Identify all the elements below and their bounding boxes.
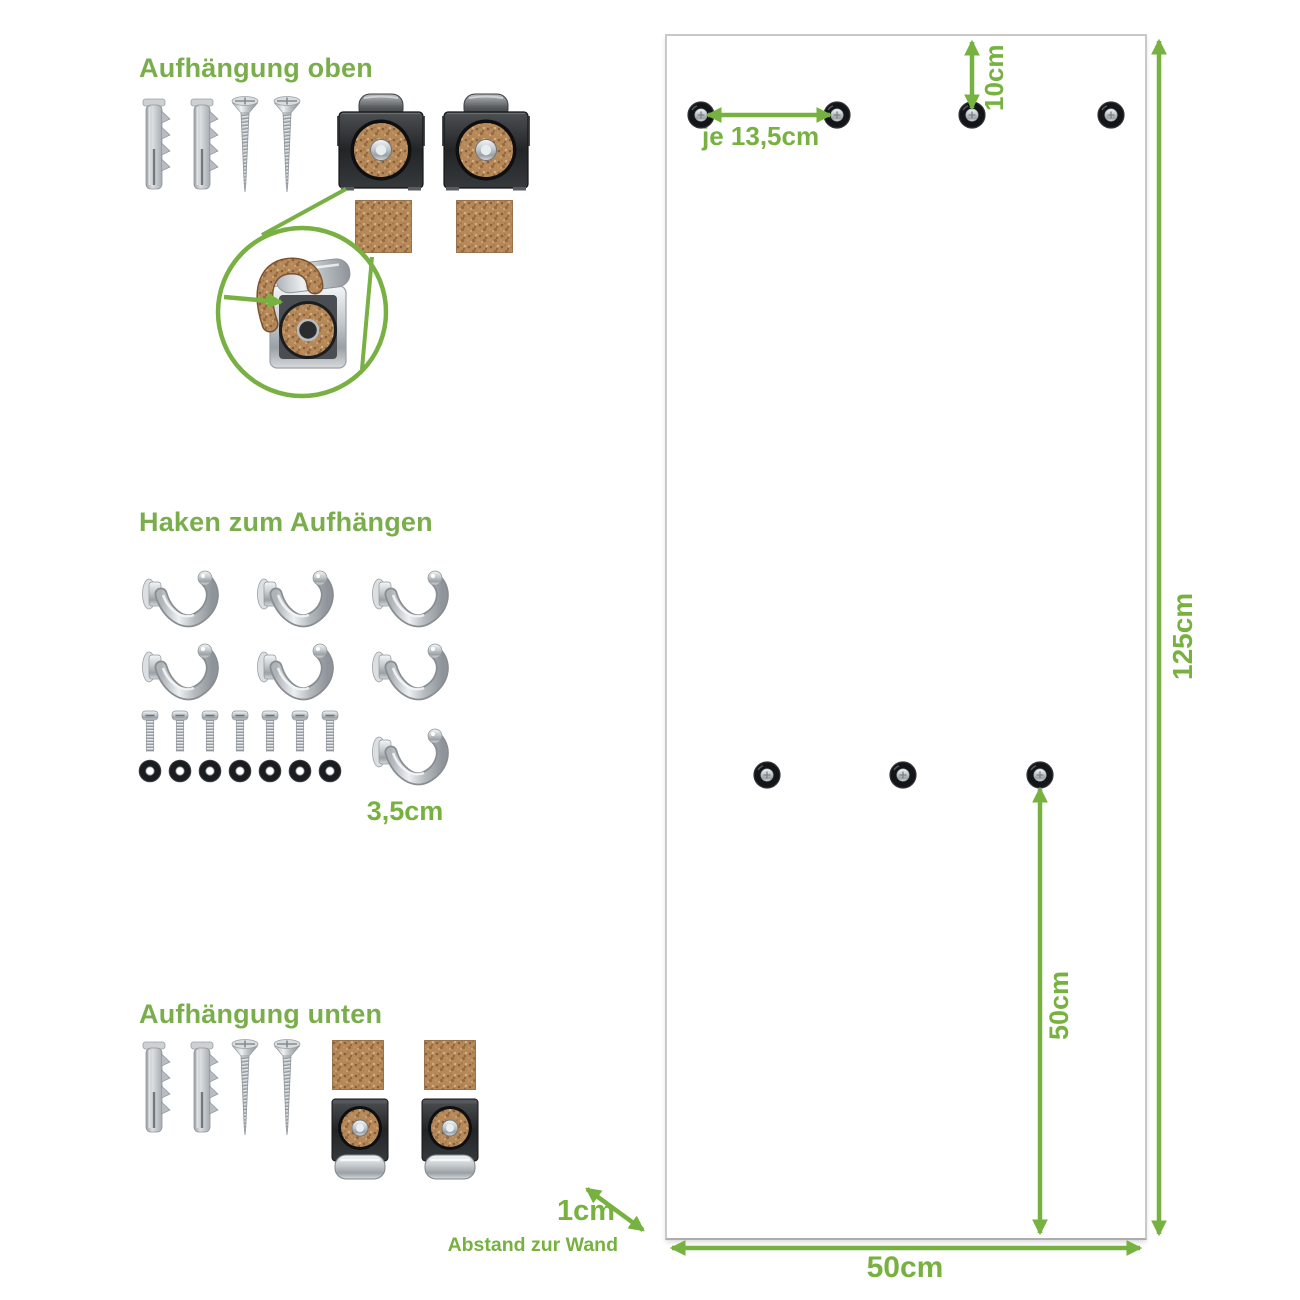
dimension-label-panel-height: 125cm (1169, 580, 1197, 692)
drill-hole-icon (823, 101, 851, 129)
cork-pad-icon (424, 1040, 476, 1090)
drill-hole-icon (889, 761, 917, 789)
washer-icon (168, 759, 192, 783)
drill-hole-icon (1026, 761, 1054, 789)
wall-plug-icon (136, 97, 172, 195)
mounting-clip-bottom-icon (419, 1097, 481, 1183)
cork-pad-icon (332, 1040, 384, 1090)
hook-icon (366, 712, 458, 794)
hook-icon (366, 554, 458, 636)
screw-icon (272, 94, 302, 198)
bolt-icon (199, 709, 221, 755)
bolt-icon (289, 709, 311, 755)
dimension-label-top-hole-spacing: je 13,5cm (702, 123, 819, 149)
hook-icon (366, 627, 458, 709)
bolt-icon (169, 709, 191, 755)
drill-hole-icon (753, 761, 781, 789)
wall-panel (665, 34, 1147, 1240)
bolt-icon (139, 709, 161, 755)
washer-icon (198, 759, 222, 783)
washer-icon (288, 759, 312, 783)
washer-icon (228, 759, 252, 783)
dimension-label-wall-distance: 1cm (535, 1197, 615, 1226)
dimension-label-hook-width: 3,5cm (355, 798, 455, 825)
dimension-label-bottom-hole-offset: 50cm (1046, 958, 1073, 1053)
screw-icon (230, 1037, 260, 1141)
cork-pad-icon (456, 200, 513, 253)
bolt-icon (319, 709, 341, 755)
washer-icon (318, 759, 342, 783)
clip-detail-illustration (214, 224, 390, 400)
hook-icon (251, 627, 343, 709)
mounting-clip-icon (442, 93, 530, 191)
screw-icon (230, 94, 260, 198)
washer-icon (138, 759, 162, 783)
hook-icon (251, 554, 343, 636)
section-title-top-mount: Aufhängung oben (139, 54, 373, 84)
wall-plug-icon (184, 97, 220, 195)
wall-plug-icon (136, 1040, 172, 1138)
dimension-label-panel-width: 50cm (666, 1253, 1144, 1283)
wall-plug-icon (184, 1040, 220, 1138)
hook-icon (136, 627, 228, 709)
washer-icon (258, 759, 282, 783)
mounting-instructions-diagram: Aufhängung oben (0, 0, 1300, 1300)
drill-hole-icon (687, 101, 715, 129)
section-title-hooks: Haken zum Aufhängen (139, 508, 433, 538)
hook-icon (136, 554, 228, 636)
section-title-bottom-mount: Aufhängung unten (139, 1000, 382, 1030)
bolt-icon (229, 709, 251, 755)
screw-icon (272, 1037, 302, 1141)
mounting-clip-icon (337, 93, 425, 191)
drill-hole-icon (1097, 101, 1125, 129)
bolt-icon (259, 709, 281, 755)
dimension-caption-wall-distance: Abstand zur Wand (430, 1236, 618, 1256)
drill-hole-icon (958, 101, 986, 129)
mounting-clip-bottom-icon (329, 1097, 391, 1183)
